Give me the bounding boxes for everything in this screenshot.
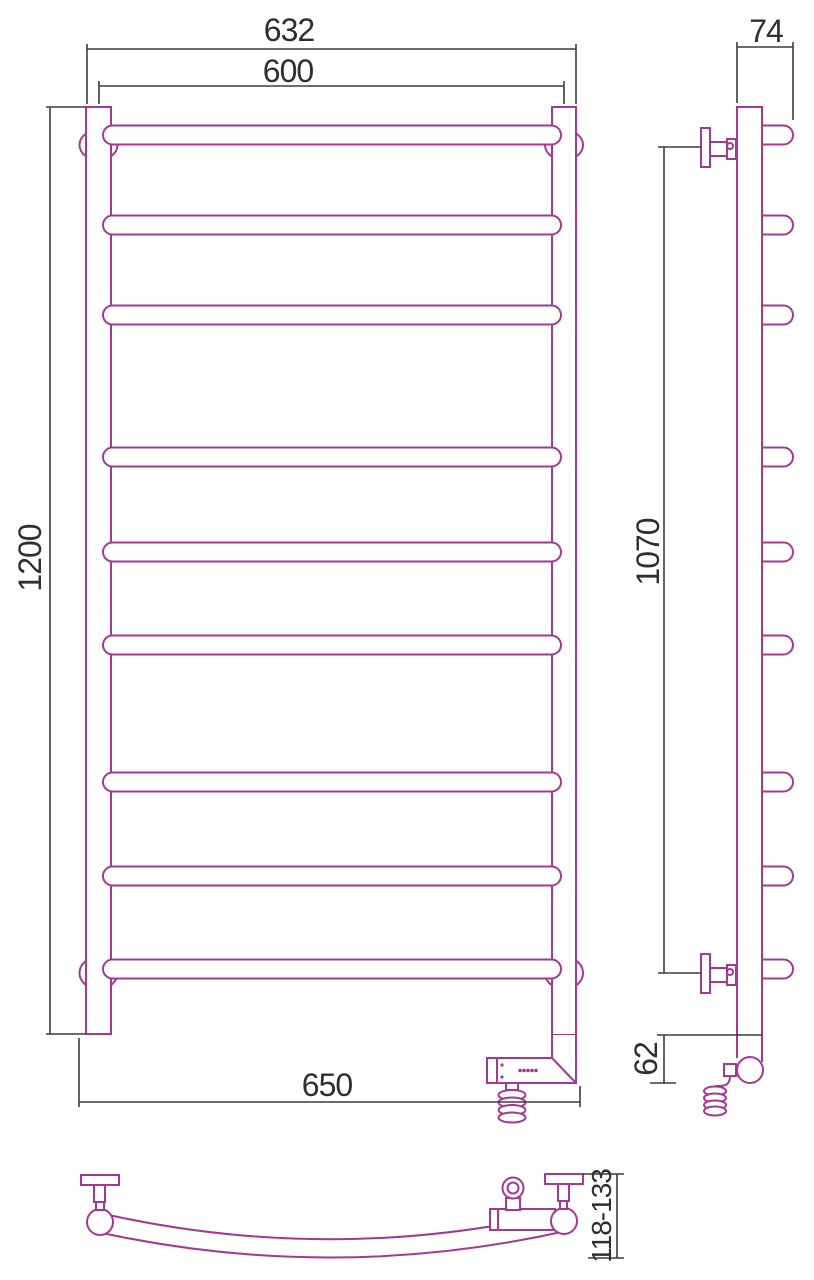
wall-bracket-bottom-right: [545, 1174, 583, 1209]
label-overall-width: 632: [264, 12, 315, 48]
towel-bar: [103, 773, 561, 792]
dim-overall-width: [87, 44, 576, 104]
cable-elbow-side: [715, 1076, 730, 1086]
side-post: [737, 107, 762, 1062]
right-post: [552, 107, 576, 1035]
towel-bar: [103, 543, 561, 562]
drawing-sheet: 632 600 1200 650 74 1070 62 118-133: [0, 0, 814, 1280]
heater-housing: [487, 1035, 576, 1083]
bottom-view: [81, 1174, 583, 1258]
label-bracket-span: 1070: [630, 518, 666, 585]
towel-bar: [103, 867, 561, 886]
label-depth: 74: [749, 13, 783, 49]
towel-bar: [103, 306, 561, 325]
towel-bar: [103, 636, 561, 655]
label-rail-spacing: 600: [263, 53, 314, 89]
towel-bar: [103, 960, 561, 979]
power-cable-coil-topview: [503, 1178, 524, 1211]
label-depth-range: 118-133: [586, 1169, 617, 1263]
post-end-left: [87, 1209, 113, 1235]
curved-bar-bottom-edge: [93, 1231, 566, 1258]
label-bottom-width: 650: [302, 1067, 353, 1103]
dim-rail-spacing: [99, 81, 564, 104]
towel-rail-drawing: 632 600 1200 650 74 1070 62 118-133: [0, 0, 814, 1280]
left-post: [86, 107, 111, 1034]
dim-overall-height: [46, 107, 86, 1034]
heater-side: [737, 1057, 763, 1083]
towel-bar: [103, 448, 561, 467]
wall-bracket-side-bottom: [701, 954, 736, 993]
towel-bar: [103, 126, 561, 145]
wall-bracket-side-top: [701, 128, 736, 167]
heater-housing-bottom: [490, 1209, 555, 1230]
side-view: [701, 107, 793, 1116]
label-heater-drop: 62: [628, 1042, 664, 1076]
wall-bracket-bottom-left: [81, 1175, 119, 1210]
post-end-right: [551, 1208, 577, 1234]
towel-bar: [103, 216, 561, 235]
power-cable-coil-side: [704, 1087, 726, 1116]
heater-connector-side: [724, 1064, 736, 1076]
label-overall-height: 1200: [12, 524, 48, 591]
front-view: [80, 107, 584, 1123]
